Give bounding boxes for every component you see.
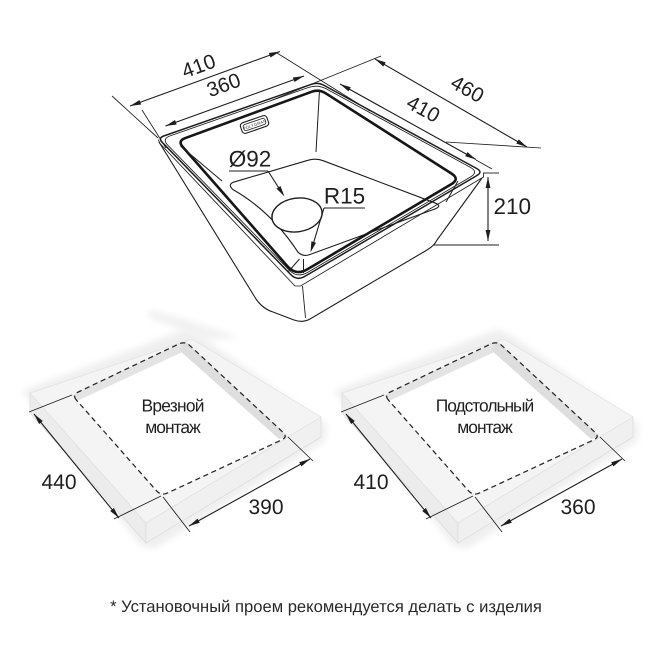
svg-text:410: 410 [353,471,388,494]
svg-text:360: 360 [560,496,595,519]
svg-text:Подстольный: Подстольный [436,395,535,415]
svg-text:монтаж: монтаж [457,417,513,437]
svg-text:210: 210 [493,194,531,219]
svg-text:390: 390 [248,496,283,519]
svg-text:Ø92: Ø92 [229,146,272,171]
svg-text:* Установочный проем рекоменду: * Установочный проем рекомендуется делат… [110,597,542,616]
svg-text:440: 440 [41,471,76,494]
svg-text:монтаж: монтаж [145,417,201,437]
svg-text:R15: R15 [324,183,365,208]
svg-text:Врезной: Врезной [141,395,204,415]
svg-text:460: 460 [447,71,488,108]
